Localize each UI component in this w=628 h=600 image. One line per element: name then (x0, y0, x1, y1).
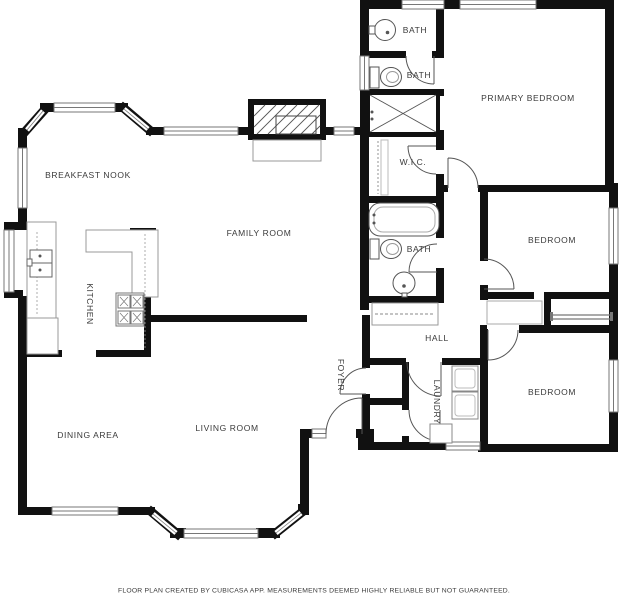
toilet-upper (370, 67, 402, 88)
wic-rod (378, 140, 388, 195)
room-label-dining-area: DINING AREA (57, 430, 118, 440)
room-label-hall: HALL (425, 333, 449, 343)
hall-closet (372, 303, 438, 325)
door-bedroom-bottom (488, 330, 518, 360)
room-label-bedroom-bottom: BEDROOM (528, 387, 576, 397)
sliding-closet-doors (550, 312, 613, 321)
room-label-breakfast-nook: BREAKFAST NOOK (45, 170, 131, 180)
stove (116, 293, 144, 326)
kitchen-sink (27, 250, 52, 277)
laundry-sink (430, 424, 452, 443)
room-label-family-room: FAMILY ROOM (227, 228, 292, 238)
pedestal-sink-top (369, 20, 396, 41)
shower (368, 93, 438, 134)
door-bedroom-middle (484, 259, 514, 289)
room-label-bath-hall: BATH (407, 244, 431, 254)
room-label-foyer: FOYER (336, 359, 346, 391)
disclaimer-text: FLOOR PLAN CREATED BY CUBICASA APP. MEAS… (118, 588, 510, 595)
pedestal-sink-hall-bath (393, 272, 415, 297)
door-primary-bedroom (448, 158, 478, 188)
floor-plan: BREAKFAST NOOK FAMILY ROOM KITCHEN DININ… (0, 0, 628, 600)
room-label-living-room: LIVING ROOM (195, 423, 258, 433)
kitchen-peninsula (86, 230, 158, 297)
toilet-hall-bath (370, 239, 402, 259)
room-label-primary-bedroom: PRIMARY BEDROOM (481, 93, 575, 103)
bathtub (369, 203, 439, 236)
exterior-walls (4, 0, 618, 538)
room-label-bath-top: BATH (403, 25, 427, 35)
room-label-wic: W.I.C. (400, 157, 427, 167)
hearth (253, 140, 321, 161)
bedroom-closet (487, 301, 542, 324)
windows (4, 0, 618, 538)
front-door (326, 398, 362, 434)
room-label-laundry: LAUNDRY (432, 380, 442, 425)
interior-walls (18, 0, 618, 450)
fireplace (248, 99, 326, 161)
refrigerator-counter (27, 318, 58, 354)
room-label-bedroom-middle: BEDROOM (528, 235, 576, 245)
room-label-kitchen: KITCHEN (85, 283, 95, 325)
room-label-bath-upper: BATH (407, 70, 431, 80)
